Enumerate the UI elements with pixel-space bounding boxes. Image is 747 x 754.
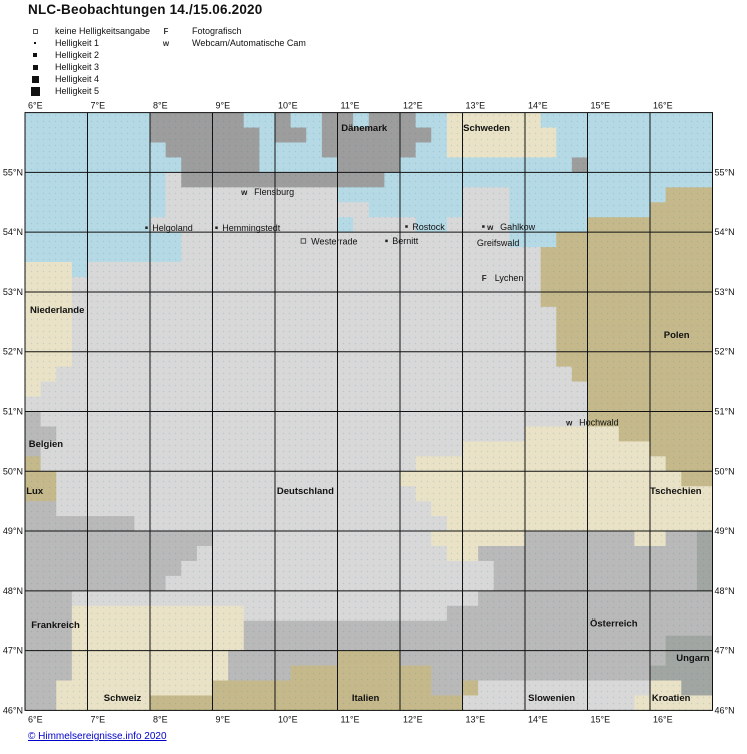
city-marker: Hemmingstedt: [215, 223, 281, 233]
country-label: Polen: [664, 330, 690, 341]
city-label: Rostock: [412, 222, 445, 232]
lat-label-left: 46°N: [3, 705, 23, 715]
country-label: Schweiz: [104, 693, 142, 704]
city-label: Hemmingstedt: [222, 223, 281, 233]
lat-label-left: 53°N: [3, 287, 23, 297]
lon-label-bottom: 7°E: [91, 714, 106, 724]
lon-label-top: 9°E: [216, 101, 231, 111]
city-label: Lychen: [495, 273, 524, 283]
letter-w-icon: w: [486, 223, 494, 232]
lat-label-right: 54°N: [715, 227, 735, 237]
country-label: Tschechien: [650, 486, 702, 497]
lon-label-bottom: 10°E: [278, 714, 298, 724]
lon-label-top: 11°E: [341, 101, 360, 111]
lon-label-top: 12°E: [403, 101, 423, 111]
lon-label-top: 16°E: [653, 101, 673, 111]
lat-label-left: 55°N: [3, 167, 23, 177]
lat-label-left: 47°N: [3, 646, 23, 656]
letter-w-icon: w: [565, 418, 573, 427]
country-label: Frankreich: [31, 620, 80, 631]
country-label: Belgien: [29, 439, 64, 450]
lat-label-right: 46°N: [715, 705, 735, 715]
city-label: Bernitt: [392, 236, 419, 246]
lon-label-bottom: 13°E: [466, 714, 486, 724]
lat-label-right: 48°N: [715, 586, 735, 596]
country-label: Deutschland: [277, 486, 334, 497]
lon-label-top: 10°E: [278, 101, 298, 111]
lat-label-right: 50°N: [715, 466, 735, 476]
lon-label-bottom: 15°E: [591, 714, 611, 724]
lat-label-right: 47°N: [715, 646, 735, 656]
city-label: Westerrade: [311, 237, 357, 247]
lon-label-bottom: 6°E: [28, 714, 43, 724]
lat-label-left: 54°N: [3, 227, 23, 237]
country-label: Schweden: [463, 123, 510, 134]
lon-label-bottom: 14°E: [528, 714, 548, 724]
lon-label-top: 6°E: [28, 101, 43, 111]
lon-label-bottom: 16°E: [653, 714, 673, 724]
letter-f-icon: F: [482, 274, 487, 283]
country-label: Dänemark: [341, 123, 388, 134]
lat-label-left: 51°N: [3, 407, 23, 417]
lon-label-bottom: 9°E: [216, 714, 231, 724]
lat-label-right: 55°N: [715, 167, 735, 177]
lon-label-top: 8°E: [153, 101, 168, 111]
lat-label-left: 50°N: [3, 466, 23, 476]
lon-label-bottom: 8°E: [153, 714, 168, 724]
lat-label-left: 52°N: [3, 347, 23, 357]
brightness-dot-icon: [215, 226, 218, 229]
lon-label-bottom: 11°E: [341, 714, 360, 724]
city-marker: Helgoland: [145, 223, 193, 233]
lon-label-top: 14°E: [528, 101, 548, 111]
lon-label-top: 7°E: [91, 101, 106, 111]
country-label: Österreich: [590, 619, 638, 630]
country-label: Italien: [352, 693, 380, 704]
nlc-observation-page: NLC-Beobachtungen 14./15.06.2020 keine H…: [0, 0, 747, 754]
city-label: Gahlkow: [500, 222, 536, 232]
lon-label-top: 13°E: [466, 101, 486, 111]
lat-label-right: 53°N: [715, 287, 735, 297]
city-label: Helgoland: [152, 223, 193, 233]
country-label: Lux: [26, 486, 44, 497]
lat-label-right: 52°N: [715, 347, 735, 357]
lat-label-right: 51°N: [715, 407, 735, 417]
footer-copyright-link[interactable]: © Himmelsereignisse.info 2020: [28, 731, 167, 742]
city-label: Greifswald: [477, 238, 520, 248]
city-marker: Greifswald: [477, 238, 520, 248]
brightness-dot-icon: [405, 225, 408, 228]
brightness-dot-icon: [145, 226, 148, 229]
brightness-dot-icon: [385, 240, 388, 243]
letter-w-icon: w: [240, 188, 248, 197]
city-label: Flensburg: [254, 187, 294, 197]
lat-label-left: 48°N: [3, 586, 23, 596]
lon-label-bottom: 12°E: [403, 714, 423, 724]
country-label: Kroatien: [652, 693, 691, 704]
country-label: Niederlande: [30, 305, 84, 316]
country-label: Slowenien: [528, 693, 575, 704]
brightness-dot-icon: [482, 225, 485, 228]
nlc-europe-map: 6°E6°E7°E7°E8°E8°E9°E9°E10°E10°E11°E11°E…: [0, 0, 747, 754]
city-marker: wGahlkow: [482, 222, 536, 232]
country-label: Ungarn: [676, 653, 709, 664]
lon-label-top: 15°E: [591, 101, 611, 111]
city-label: Hochwald: [579, 417, 619, 427]
lat-label-right: 49°N: [715, 526, 735, 536]
lat-label-left: 49°N: [3, 526, 23, 536]
